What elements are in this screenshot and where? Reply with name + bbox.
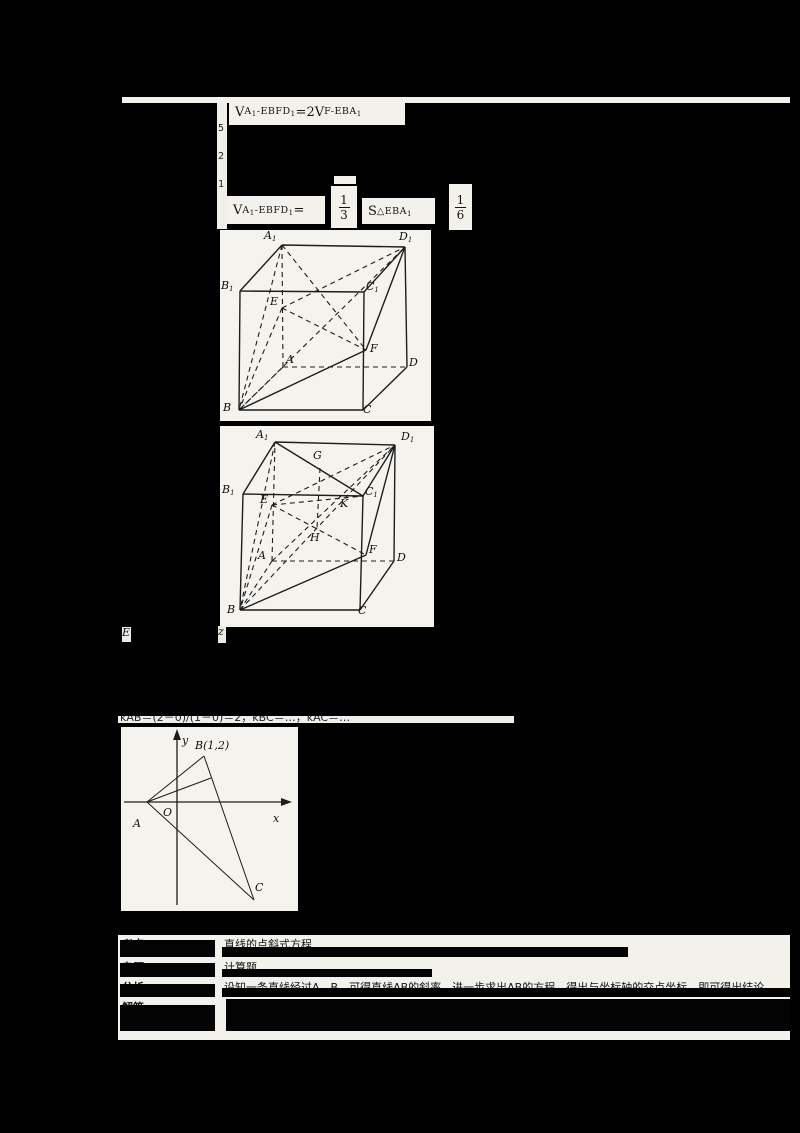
margin-fragment: 5	[218, 123, 224, 134]
formula-term: V	[233, 204, 242, 217]
figure-label: B	[223, 402, 231, 413]
margin-fragment: 1	[218, 179, 224, 190]
formula-term: V	[235, 106, 244, 119]
formula-term: V	[315, 106, 324, 119]
redaction-bar	[120, 984, 215, 997]
formula-subscript: △EBA1	[377, 207, 412, 217]
fraction-one-third: 1 3	[331, 186, 357, 228]
coordinate-figure-drawing	[121, 727, 298, 911]
coordinate-figure: yxOAB(1,2)C	[121, 727, 298, 911]
figure-label: K	[340, 498, 348, 509]
figure-label: E	[270, 296, 278, 307]
cube-figure-1-drawing	[220, 230, 431, 421]
figure-label: C1	[365, 486, 378, 497]
figure-label: A	[133, 818, 141, 829]
figure-label: E	[260, 494, 268, 505]
figure-label: D1	[401, 431, 414, 442]
fragment-letter: z	[218, 626, 224, 638]
figure-label: D1	[399, 231, 412, 242]
figure-label: C	[358, 605, 366, 616]
fraction-denominator: 3	[340, 209, 348, 221]
figure-label: G	[313, 450, 322, 461]
cube-figure-2: A1D1GB1C1EKHAFDBC	[220, 426, 434, 627]
formula-term: S	[368, 205, 377, 218]
figure-label: O	[163, 807, 172, 818]
figure-label: D	[397, 552, 406, 563]
redacted-line-fragment: E	[122, 627, 131, 642]
cube-figure-2-drawing	[220, 426, 434, 627]
figure-label: B	[227, 604, 235, 615]
fragment-letter: E	[122, 627, 130, 639]
figure-label: C1	[366, 281, 379, 292]
margin-fragment-strip: 5 2 1	[217, 103, 227, 229]
figure-label: A	[286, 354, 294, 365]
redaction-bar	[222, 947, 628, 957]
figure-label: D	[409, 357, 418, 368]
answer-key-table: 考点 直线的点斜式方程 专题 计算题 分析 设知一条直线经过A、B，可得直线AB…	[118, 935, 790, 1033]
formula-subscript: A1-EBFD1	[242, 206, 293, 216]
figure-label: F	[369, 544, 377, 555]
triangle-abc	[147, 756, 254, 900]
fraction-denominator: 6	[457, 209, 465, 221]
page-bottom-strip	[118, 1033, 790, 1040]
figure-label: H	[310, 532, 320, 543]
redaction-bar	[120, 963, 215, 977]
formula-subscript: A1-EBFD1	[244, 107, 295, 117]
fraction-numerator: 1	[457, 194, 465, 206]
formula-equals: =2	[296, 106, 315, 119]
clipped-calculation-line: kAB＝(2－0)/(1－0)＝2，kBC＝…，kAC＝…	[118, 716, 514, 723]
figure-label: y	[182, 735, 188, 746]
axes	[124, 737, 285, 905]
redaction-bar	[226, 999, 790, 1031]
formula-equals: =	[294, 204, 305, 217]
formula-area-term: S△EBA1	[362, 198, 435, 224]
figure-label: C	[255, 882, 263, 893]
cube1-dashed-lines	[239, 245, 407, 410]
clipped-calculation-text: kAB＝(2－0)/(1－0)＝2，kBC＝…，kAC＝…	[120, 716, 350, 723]
fraction-numerator: 1	[340, 194, 348, 206]
formula-speck	[334, 176, 356, 184]
formula-subscript: F-EBA1	[324, 107, 362, 117]
redaction-bar	[120, 1005, 215, 1031]
figure-label: A1	[264, 230, 276, 241]
cube-figure-1: A1D1B1C1EAFDBC	[220, 230, 431, 421]
figure-label: A	[258, 550, 266, 561]
figure-label: B1	[221, 280, 234, 291]
cube2-dashed-lines	[240, 442, 395, 610]
table-row-jieda: 解答	[118, 998, 790, 1033]
figure-label: A1	[256, 429, 268, 440]
formula-volume-lhs: VA1-EBFD1=	[227, 196, 325, 224]
redacted-line-fragment: z	[218, 626, 226, 643]
axis-arrowheads	[173, 729, 292, 806]
scanned-document-page: 5 2 1 VA1-EBFD1=2VF-EBA1 VA1-EBFD1= 1 3 …	[0, 0, 800, 1133]
figure-label: C	[363, 404, 371, 415]
figure-label: B1	[222, 484, 235, 495]
redaction-bar	[120, 940, 215, 957]
figure-label: F	[370, 343, 378, 354]
figure-label: x	[273, 813, 279, 824]
table-row-zhuanti: 专题 计算题	[118, 958, 790, 978]
figure-label: B(1,2)	[195, 740, 229, 751]
fraction-one-sixth: 1 6	[449, 184, 472, 230]
margin-fragment: 2	[218, 151, 224, 162]
table-row-fenxi: 分析 设知一条直线经过A、B，可得直线AB的斜率，进一步求出AB的方程，得出与坐…	[118, 978, 790, 998]
redaction-bar	[222, 969, 432, 977]
table-row-kaodian: 考点 直线的点斜式方程	[118, 935, 790, 958]
redaction-bar	[222, 988, 790, 997]
formula-volume-equality: VA1-EBFD1=2VF-EBA1	[229, 98, 405, 125]
